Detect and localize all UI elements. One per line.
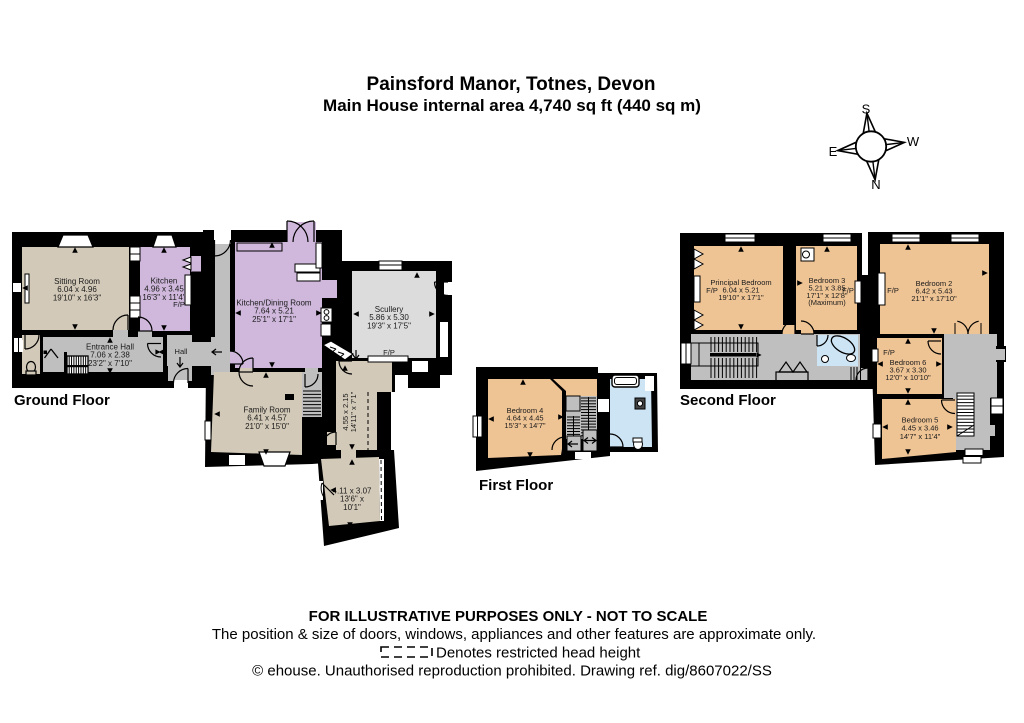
svg-text:12'0" x 10'10": 12'0" x 10'10"	[885, 373, 931, 382]
svg-text:16'3" x 11'4": 16'3" x 11'4"	[142, 293, 185, 302]
svg-text:19'3" x 17'5": 19'3" x 17'5"	[367, 321, 411, 330]
svg-text:19'10" x 16'3": 19'10" x 16'3"	[53, 293, 101, 302]
svg-text:23'2" x 7'10": 23'2" x 7'10"	[88, 359, 132, 368]
svg-text:14'11" x 7'1": 14'11" x 7'1"	[349, 391, 358, 432]
svg-text:S: S	[862, 102, 871, 117]
svg-text:15'3" x 14'7": 15'3" x 14'7"	[504, 421, 545, 430]
svg-text:F/P: F/P	[887, 286, 899, 295]
svg-text:10'1": 10'1"	[343, 503, 361, 512]
svg-text:Second Floor: Second Floor	[680, 392, 776, 409]
svg-text:21'1" x 17'10": 21'1" x 17'10"	[911, 294, 957, 303]
svg-text:First Floor: First Floor	[479, 477, 553, 494]
svg-text:F/P: F/P	[706, 286, 718, 295]
svg-text:E: E	[829, 144, 838, 159]
svg-text:Painsford Manor, Totnes, Devon: Painsford Manor, Totnes, Devon	[367, 74, 656, 95]
svg-text:The position & size of doors,: The position & size of doors, windows, a…	[212, 626, 816, 643]
svg-text:© ehouse. Unauthorised reprodu: © ehouse. Unauthorised reproduction proh…	[252, 663, 772, 680]
svg-text:25'1" x 17'1": 25'1" x 17'1"	[252, 315, 296, 324]
svg-text:Hall: Hall	[175, 347, 188, 356]
svg-text:19'10" x 17'1": 19'10" x 17'1"	[718, 293, 764, 302]
svg-text:(Maximum): (Maximum)	[808, 298, 846, 307]
svg-text:21'0" x 15'0": 21'0" x 15'0"	[245, 422, 289, 431]
svg-text:FOR ILLUSTRATIVE PURPOSES ONLY: FOR ILLUSTRATIVE PURPOSES ONLY - NOT TO …	[309, 608, 708, 625]
svg-text:14'7" x 11'4": 14'7" x 11'4"	[900, 432, 941, 441]
svg-text:F/P: F/P	[883, 348, 895, 357]
svg-text:W: W	[907, 134, 920, 149]
svg-text:N: N	[871, 177, 880, 192]
svg-text:Denotes restricted head height: Denotes restricted head height	[436, 645, 641, 662]
svg-text:Ground Floor: Ground Floor	[14, 392, 110, 409]
svg-text:Main House internal area 4,740: Main House internal area 4,740 sq ft (44…	[323, 96, 701, 115]
